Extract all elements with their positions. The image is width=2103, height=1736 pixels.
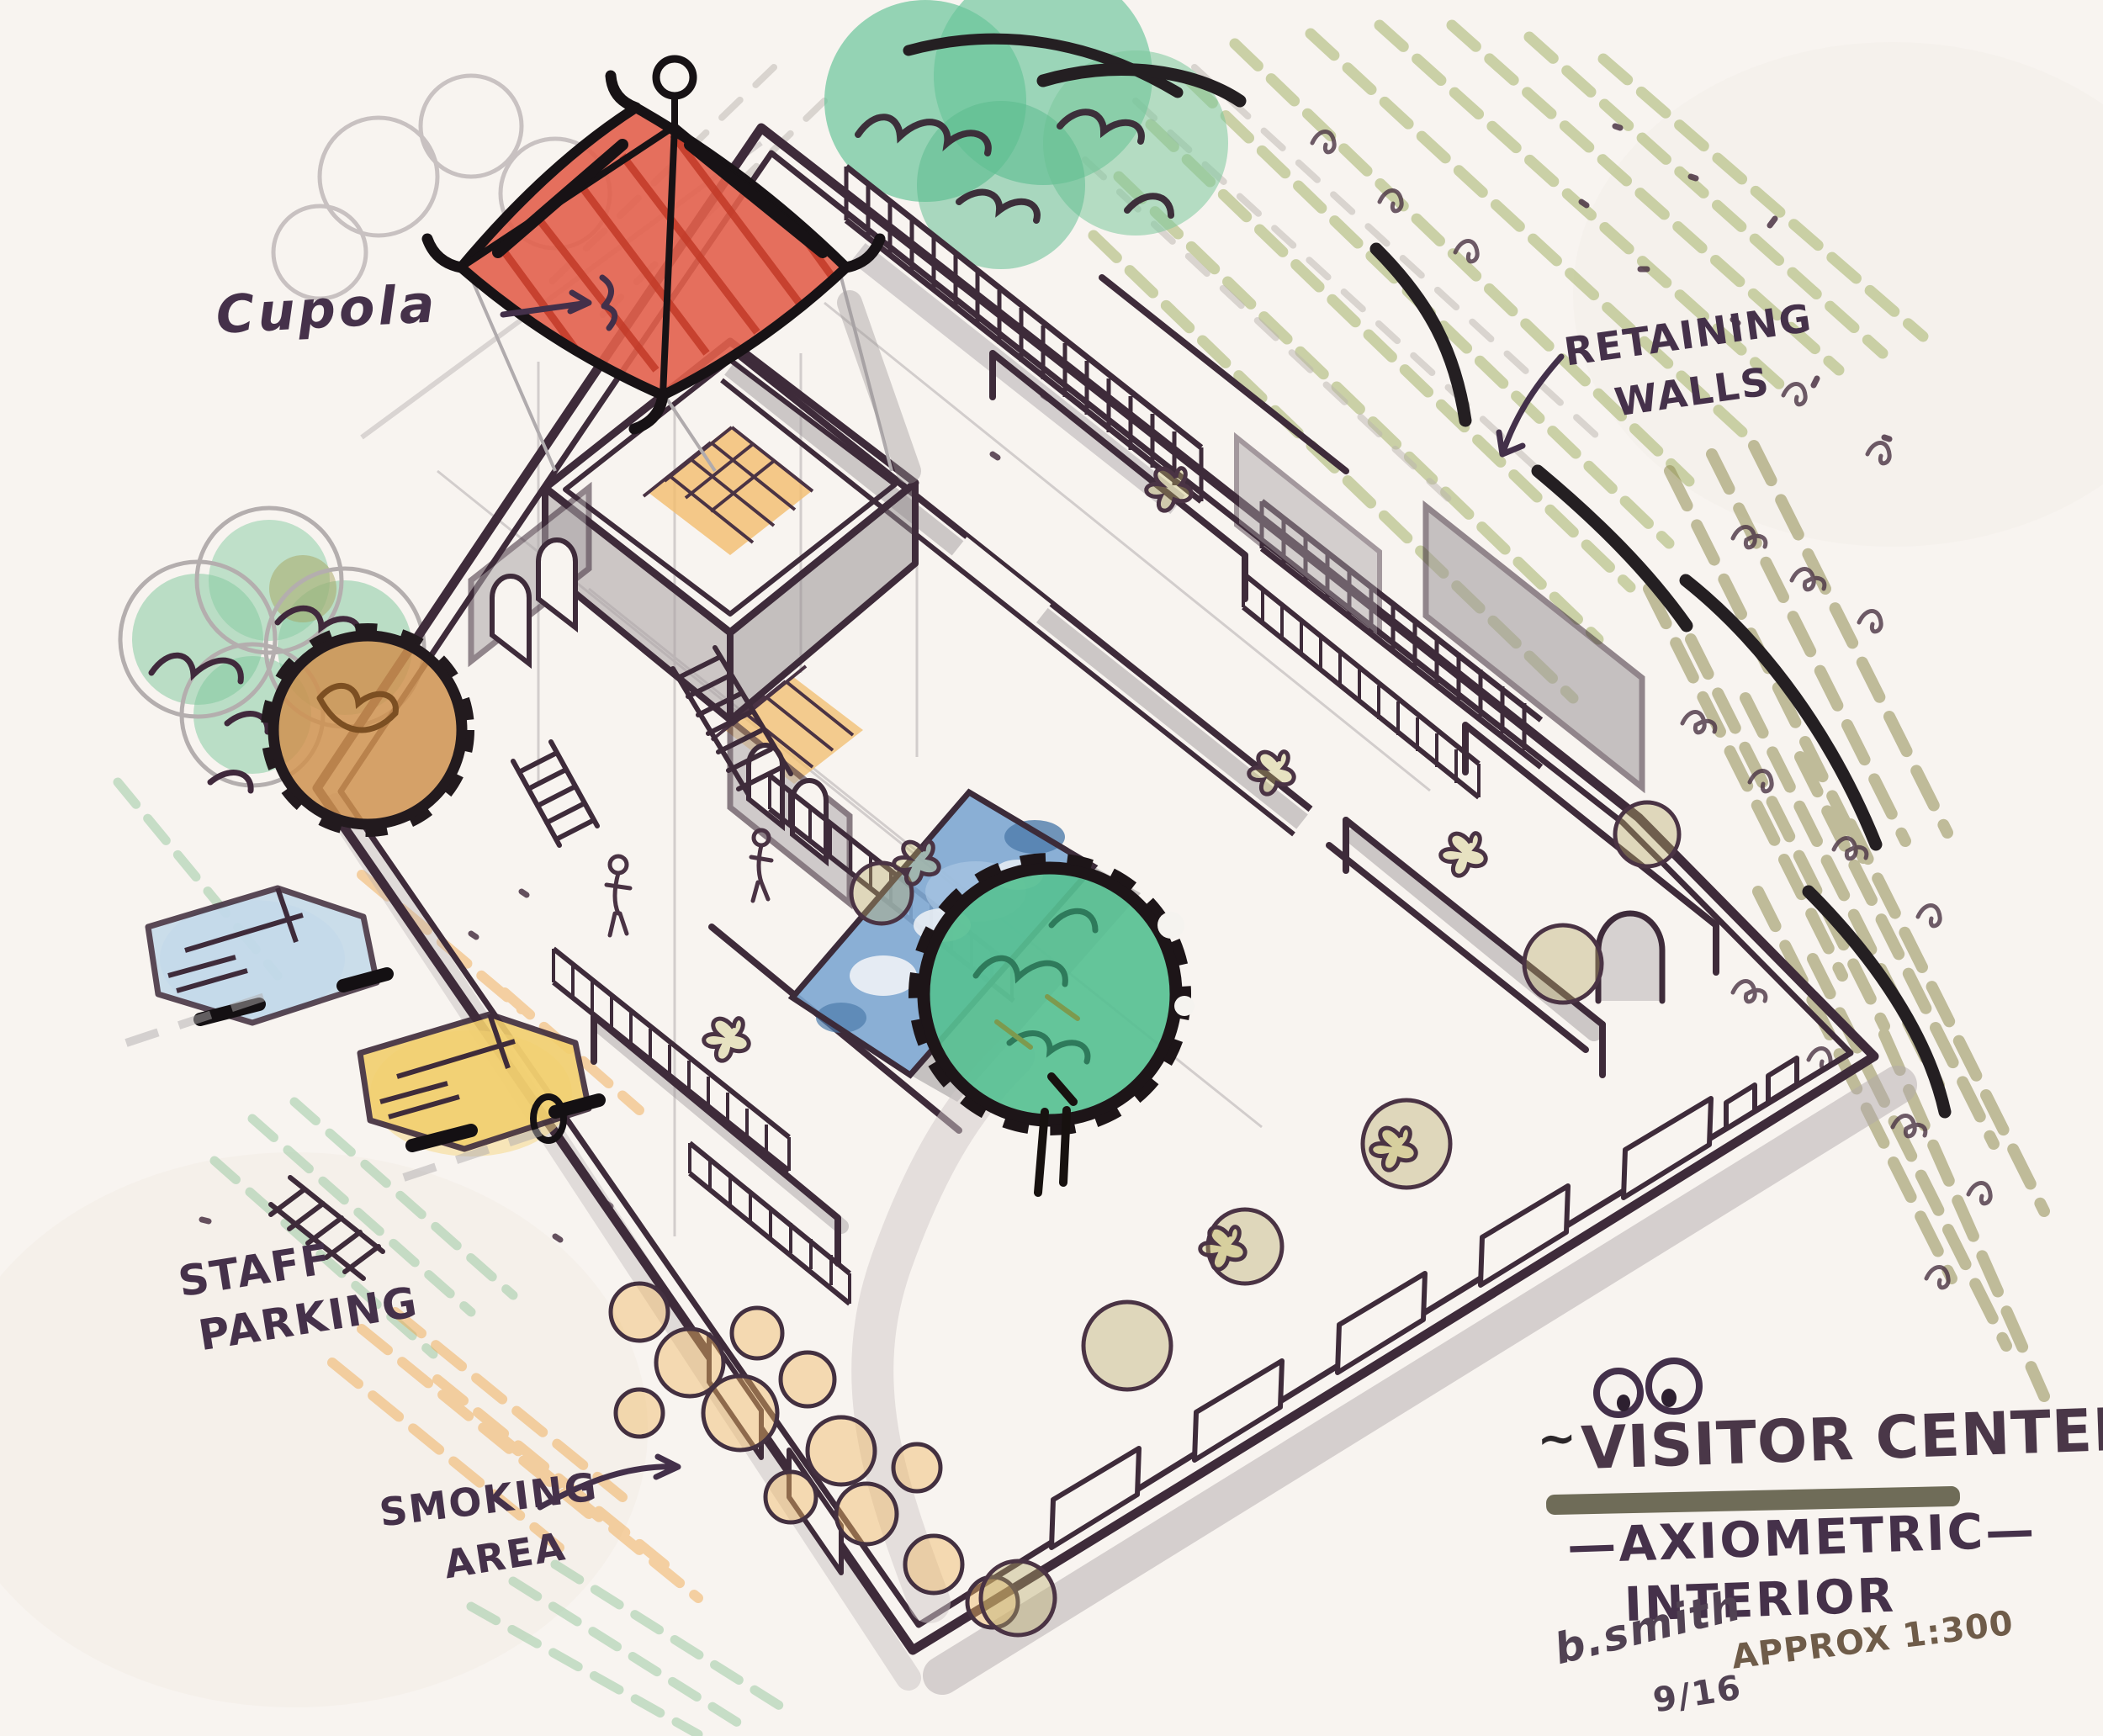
cupola-finial [656, 59, 693, 96]
title-tilde-left: ~ [1536, 1410, 1577, 1467]
cupola-label: Cupola [215, 273, 439, 346]
sketch-page: Cupola RETAINING WALLS STAFF PARKING SMO… [0, 0, 2103, 1736]
